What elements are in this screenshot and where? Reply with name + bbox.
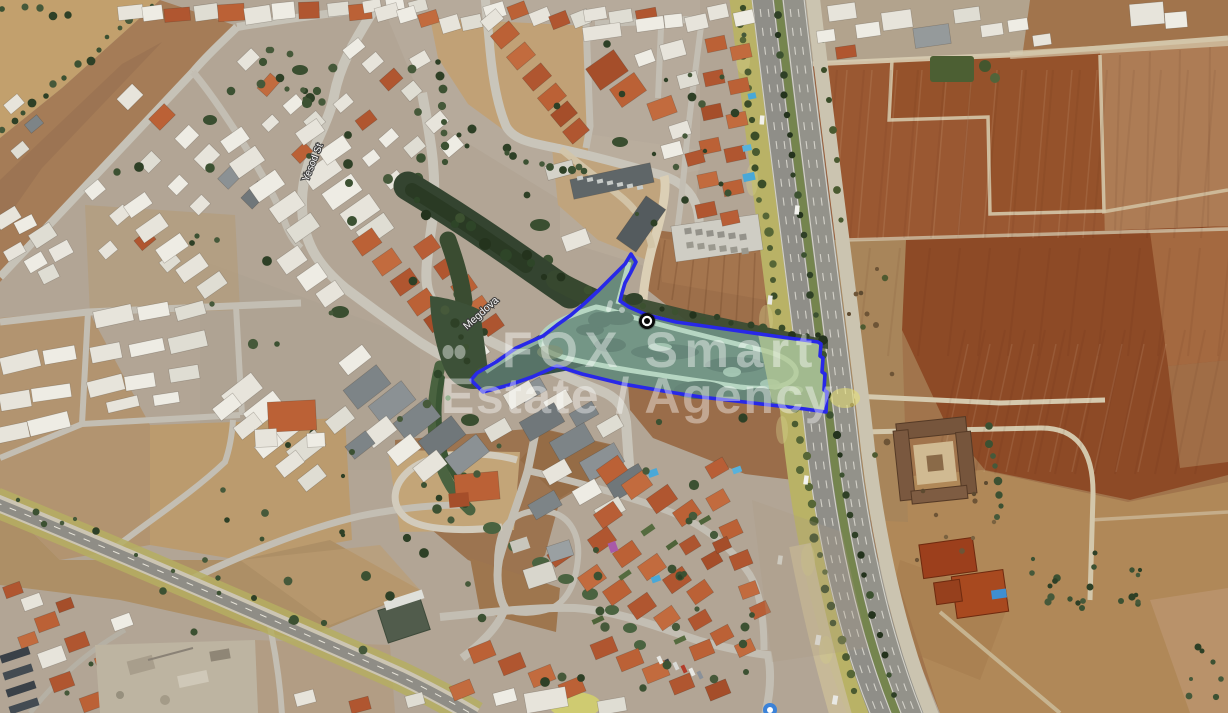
svg-text:Estate / Agency: Estate / Agency	[441, 368, 834, 424]
